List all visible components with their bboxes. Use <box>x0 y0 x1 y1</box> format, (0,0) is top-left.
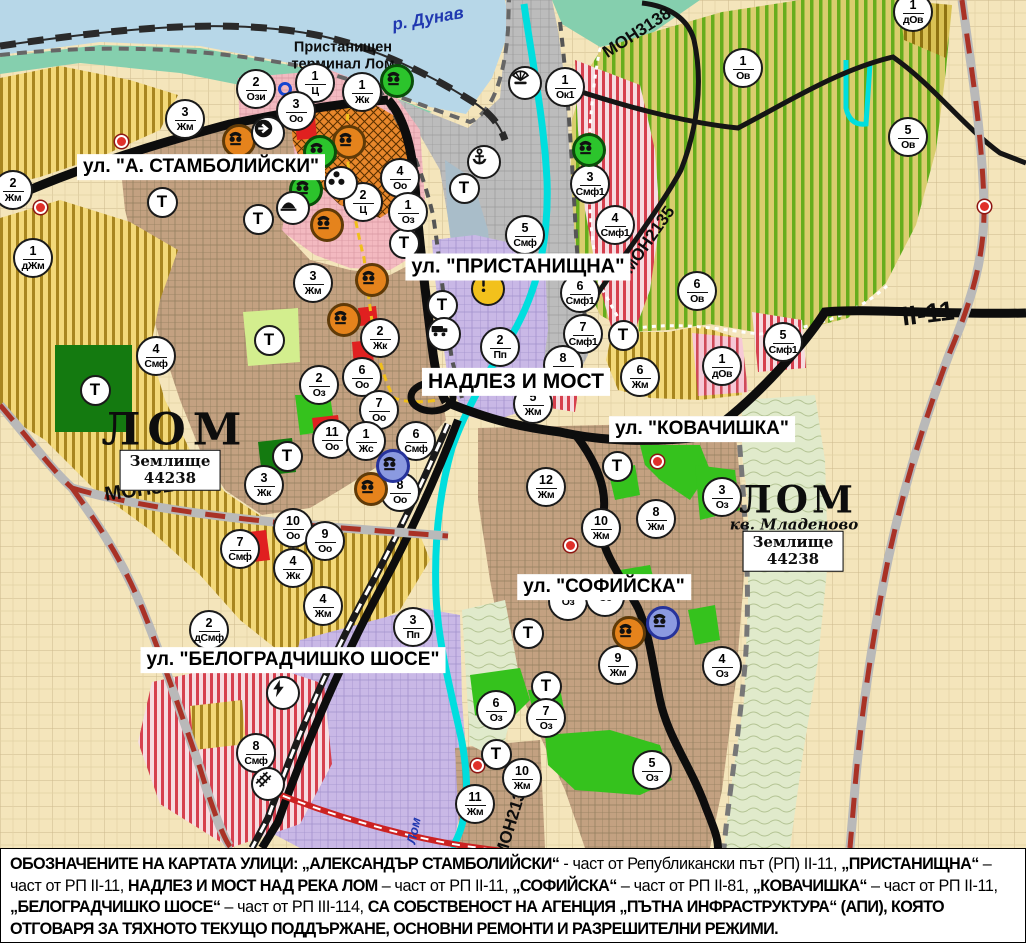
zone-number: 4 <box>153 343 160 356</box>
street-label-sofiyska: ул. "СОФИЙСКА" <box>517 574 691 600</box>
transport-stop-marker: Т <box>80 375 111 406</box>
zone-code: Оз <box>540 721 553 732</box>
zone-code: Жм <box>514 781 530 792</box>
zone-marker: 6Ов <box>677 271 717 311</box>
zone-number: 10 <box>515 765 529 778</box>
zone-marker: 5Смф <box>505 215 545 255</box>
zone-code: Жм <box>5 193 21 204</box>
zone-marker: 7Смф <box>220 529 260 569</box>
zone-marker: 3Смф1 <box>570 164 610 204</box>
zone-marker: 1Жк <box>342 72 382 112</box>
zoning-map-screenshot: { "palette":{ "water":"#b7d7e8","teal_sh… <box>0 0 1026 943</box>
transport-stop-marker: Т <box>602 451 633 482</box>
zone-marker: 2Пп <box>480 327 520 367</box>
zone-code: Жс <box>359 444 374 455</box>
zone-code: Пп <box>406 630 419 641</box>
water-label-lom-river: р. Лом <box>400 816 423 848</box>
zone-marker: 10Жм <box>581 508 621 548</box>
zone-code: Смф1 <box>601 228 630 239</box>
zone-number: 3 <box>261 472 268 485</box>
zone-code: Смф <box>228 552 251 563</box>
note-segment: „СОФИЙСКА“ <box>512 877 616 895</box>
zone-code: Смф1 <box>769 345 798 356</box>
zone-marker: 2Ози <box>236 69 276 109</box>
zone-number: 6 <box>413 428 420 441</box>
zone-code: Оо <box>289 114 303 125</box>
map-canvas: 2Ози1Ц1Жк3Оо3Жм2Жм1дЖм1Ок13Смф14Смф14Оо2… <box>0 0 1026 848</box>
zone-number: 11 <box>325 426 338 439</box>
transport-stop-marker: Т <box>243 204 274 235</box>
zone-code: Оо <box>355 380 369 391</box>
zone-code: Смф <box>404 444 427 455</box>
monument-icon <box>376 449 410 483</box>
zone-marker: 5Смф1 <box>763 322 803 362</box>
zone-code: Ов <box>690 294 704 305</box>
zone-code: Жк <box>355 95 369 106</box>
zone-number: 4 <box>612 212 619 225</box>
zone-marker: 12Жм <box>526 467 566 507</box>
zone-number: 6 <box>637 364 644 377</box>
zone-number: 1 <box>740 55 747 68</box>
zone-number: 9 <box>322 528 329 541</box>
monument-icon <box>612 616 646 650</box>
zone-number: 5 <box>780 329 787 342</box>
zone-marker: 3Жк <box>244 465 284 505</box>
zone-code: Оо <box>393 495 407 506</box>
transport-stop-marker: Т <box>513 618 544 649</box>
monument-icon <box>332 125 366 159</box>
zone-code: Жм <box>538 490 554 501</box>
zone-number: 1 <box>562 74 569 87</box>
lightning-icon <box>266 676 300 710</box>
zone-number: 10 <box>286 515 300 528</box>
zone-marker: 8Жм <box>636 499 676 539</box>
monument-icon <box>327 303 361 337</box>
zone-code: Смф <box>144 359 167 370</box>
zone-code: Ц <box>311 86 318 97</box>
map-annotation-note: ОБОЗНАЧЕНИТЕ НА КАРТАТА УЛИЦИ: „АЛЕКСАНД… <box>0 848 1026 943</box>
zone-marker: 3Оз <box>702 477 742 517</box>
zone-code: Ок1 <box>556 90 574 101</box>
labels-layer: ул. "А. СТАМБОЛИЙСКИ"ул. "ПРИСТАНИЩНА"НА… <box>0 0 1026 848</box>
zone-number: 3 <box>293 98 300 111</box>
monument-icon <box>380 64 414 98</box>
zone-number: 5 <box>522 222 529 235</box>
zone-number: 6 <box>577 280 584 293</box>
zone-code: Жк <box>257 488 271 499</box>
monument-icon <box>646 606 680 640</box>
truck-icon <box>427 317 461 351</box>
zone-number: 4 <box>290 555 297 568</box>
zone-code: Жм <box>632 380 648 391</box>
zone-marker: 3Жм <box>293 263 333 303</box>
railway-icon <box>251 767 285 801</box>
fan-icon <box>508 66 542 100</box>
zone-number: 3 <box>182 106 189 119</box>
zone-marker: 9Жм <box>598 645 638 685</box>
zone-code: Оо <box>393 181 407 192</box>
zone-number: 7 <box>580 321 587 334</box>
zone-marker: 1Оз <box>388 192 428 232</box>
zone-marker: 2Жк <box>360 318 400 358</box>
note-segment: – част от РП II-11, <box>867 877 998 895</box>
red-point-marker <box>115 135 128 148</box>
zone-code: Жм <box>315 609 331 620</box>
water-label-danube: р. Дунав <box>391 3 465 35</box>
zone-marker: 5Оз <box>632 750 672 790</box>
zone-number: 4 <box>397 165 404 178</box>
boat-icon <box>276 191 310 225</box>
zone-code: Оо <box>372 413 386 424</box>
note-segment: ОБОЗНАЧЕНИТЕ НА КАРТАТА УЛИЦИ: „АЛЕКСАНД… <box>10 855 559 873</box>
zone-code: Жм <box>610 668 626 679</box>
road-label-ii-11: II-11 <box>900 295 956 332</box>
zone-number: 1 <box>359 79 366 92</box>
zone-marker: 6Жм <box>620 357 660 397</box>
zone-number: 11 <box>468 791 481 804</box>
monument-icon <box>310 208 344 242</box>
zone-number: 2 <box>316 372 323 385</box>
transport-stop-marker: Т <box>608 320 639 351</box>
transport-stop-marker: Т <box>449 173 480 204</box>
zone-number: 2 <box>360 189 367 202</box>
zone-number: 3 <box>587 171 594 184</box>
zone-code: Смф1 <box>566 296 595 307</box>
zone-marker: 4Жк <box>273 548 313 588</box>
monument-icon <box>355 263 389 297</box>
zone-number: 10 <box>594 515 608 528</box>
zone-number: 7 <box>237 536 244 549</box>
zone-code: Жм <box>467 807 483 818</box>
zone-code: Оо <box>318 544 332 555</box>
street-label-kovachishka: ул. "КОВАЧИШКА" <box>609 416 795 442</box>
zone-number: 6 <box>359 364 366 377</box>
zone-marker: 10Жм <box>502 758 542 798</box>
zone-code: Смф <box>244 756 267 767</box>
zone-code: Ов <box>901 140 915 151</box>
zone-marker: 5Ов <box>888 117 928 157</box>
people-icon <box>324 166 358 200</box>
zone-code: Смф <box>513 238 536 249</box>
zone-marker: 9Оо <box>305 521 345 561</box>
transport-stop-marker: Т <box>147 187 178 218</box>
zone-code: дОв <box>712 369 732 380</box>
transport-stop-marker: Т <box>254 325 285 356</box>
zone-code: дСмф <box>194 633 223 644</box>
zone-code: Жк <box>286 571 300 582</box>
zone-number: 3 <box>310 270 317 283</box>
zone-number: 8 <box>560 352 567 365</box>
zone-number: 1 <box>30 245 37 258</box>
zone-code: Оз <box>716 500 729 511</box>
zone-code: Оз <box>716 669 729 680</box>
zone-number: 6 <box>493 697 500 710</box>
zone-code: Оз <box>490 713 503 724</box>
zone-code: Жм <box>305 286 321 297</box>
street-label-nadlez-i-most: НАДЛЕЗ И МОСТ <box>422 368 610 396</box>
zone-number: 6 <box>694 278 701 291</box>
area-label-zemlishte-east: Землище 44238 <box>743 531 844 572</box>
zone-number: 2 <box>377 325 384 338</box>
zone-marker: 7Оз <box>526 698 566 738</box>
anchor-icon <box>467 145 501 179</box>
zone-marker: 2дСмф <box>189 610 229 650</box>
zone-code: Ц <box>359 205 366 216</box>
zone-marker: 2Оз <box>299 365 339 405</box>
zone-marker: 4Смф1 <box>595 205 635 245</box>
zone-code: Пп <box>493 350 506 361</box>
road-label-mon3138: МОН3138 <box>599 4 675 63</box>
area-label-lom-west: ЛОМ <box>102 406 249 457</box>
zone-number: 3 <box>410 614 417 627</box>
zone-code: Смф1 <box>569 337 598 348</box>
zone-number: 7 <box>543 705 550 718</box>
zone-code: Жм <box>525 407 541 418</box>
note-segment: „КОВАЧИШКА“ <box>753 877 867 895</box>
red-point-marker <box>651 455 664 468</box>
note-segment: „БЕЛОГРАДЧИШКО ШОСЕ“ <box>10 898 220 916</box>
note-segment: – част от РП II-81, <box>617 877 753 895</box>
zone-marker: 4Смф <box>136 336 176 376</box>
zone-code: Жм <box>593 531 609 542</box>
zone-number: 5 <box>905 124 912 137</box>
note-segment: - част от Републикански път (РП) II-11, <box>559 855 841 873</box>
zone-code: Оз <box>313 388 326 399</box>
zone-marker: 6Оз <box>476 690 516 730</box>
area-label-zemlishte-west: Землище 44238 <box>120 450 221 491</box>
zone-number: 2 <box>10 177 17 190</box>
red-point-marker <box>978 200 991 213</box>
zone-number: 1 <box>719 353 726 366</box>
street-label-pristanishtna: ул. "ПРИСТАНИЩНА" <box>405 254 630 281</box>
zone-code: Жм <box>177 122 193 133</box>
zone-code: Жк <box>373 341 387 352</box>
zone-marker: 3Пп <box>393 607 433 647</box>
zone-code: дОв <box>903 15 923 26</box>
street-label-stamboliyski: ул. "А. СТАМБОЛИЙСКИ" <box>77 154 325 180</box>
zone-number: 9 <box>615 652 622 665</box>
zone-marker: 1дЖм <box>13 238 53 278</box>
transport-stop-marker: Т <box>531 671 562 702</box>
zone-number: 1 <box>312 70 319 83</box>
zone-code: Оо <box>286 531 300 542</box>
zone-code: Оз <box>646 773 659 784</box>
zone-code: дЖм <box>22 261 45 272</box>
zone-number: 8 <box>253 740 260 753</box>
zone-number: 12 <box>539 474 553 487</box>
transport-stop-marker: Т <box>272 441 303 472</box>
note-segment: – част от РП II-11, <box>378 877 513 895</box>
zone-number: 2 <box>497 334 504 347</box>
red-point-marker <box>564 539 577 552</box>
zone-number: 8 <box>653 506 660 519</box>
zone-number: 1 <box>363 428 370 441</box>
zone-marker: 1дОв <box>702 346 742 386</box>
zone-marker: 4Оз <box>702 646 742 686</box>
zone-number: 5 <box>649 757 656 770</box>
monument-icon <box>572 133 606 167</box>
zone-marker: 4Жм <box>303 586 343 626</box>
zone-code: Жм <box>648 522 664 533</box>
zone-number: 7 <box>376 397 383 410</box>
street-label-belogradchishko-shose: ул. "БЕЛОГРАДЧИШКО ШОСЕ" <box>141 647 446 673</box>
zone-code: Смф1 <box>576 187 605 198</box>
arrow-icon <box>251 116 285 150</box>
zone-code: Оз <box>402 215 415 226</box>
zone-code: Оо <box>325 442 339 453</box>
zone-code: Ов <box>736 71 750 82</box>
zone-number: 1 <box>910 0 917 12</box>
note-segment: НАДЛЕЗ И МОСТ НАД РЕКА ЛОМ <box>128 877 378 895</box>
zone-marker: 3Жм <box>165 99 205 139</box>
zone-number: 4 <box>320 593 327 606</box>
red-point-marker <box>34 201 47 214</box>
zone-marker: 1Ов <box>723 48 763 88</box>
zone-marker: 1Ок1 <box>545 67 585 107</box>
zone-marker: 11Жм <box>455 784 495 824</box>
zone-number: 2 <box>206 617 213 630</box>
zone-number: 3 <box>719 484 726 497</box>
transport-stop-marker: Т <box>427 290 458 321</box>
zone-code: Ози <box>247 92 266 103</box>
zone-number: 4 <box>719 653 726 666</box>
note-segment: – част от РП III-114, <box>220 898 367 916</box>
zone-number: 1 <box>405 199 412 212</box>
note-segment: „ПРИСТАНИЩНА“ <box>841 855 979 873</box>
zone-number: 2 <box>253 76 260 89</box>
